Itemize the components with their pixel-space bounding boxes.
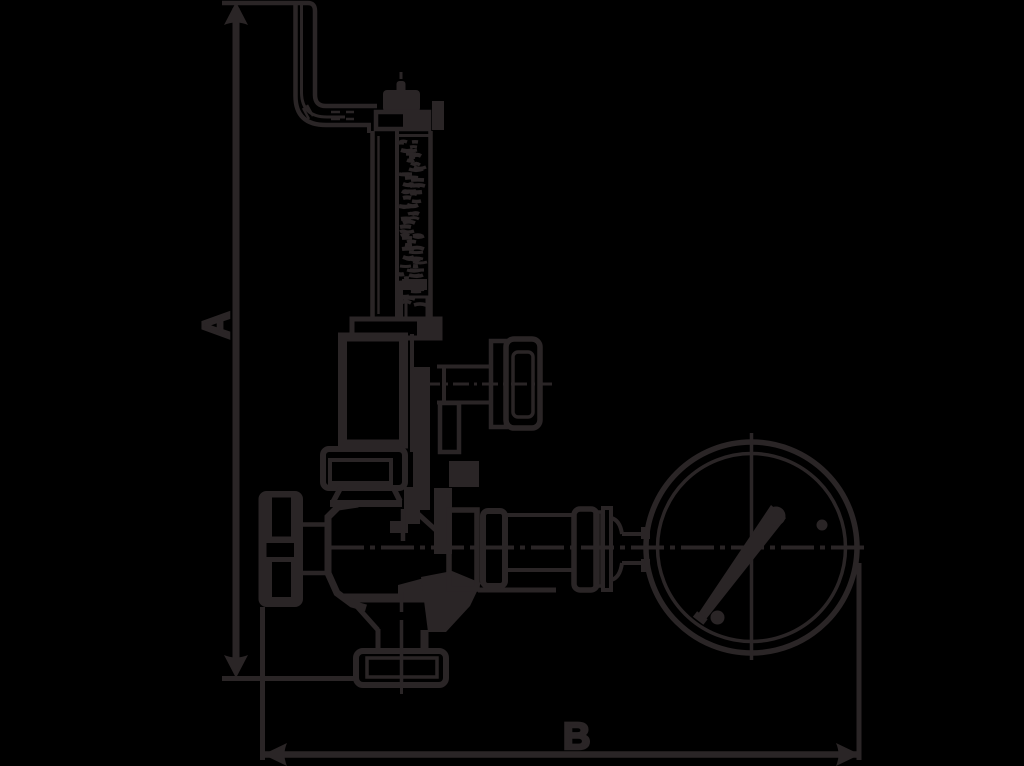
svg-text:B: B: [563, 716, 590, 758]
svg-text:A: A: [196, 312, 238, 339]
